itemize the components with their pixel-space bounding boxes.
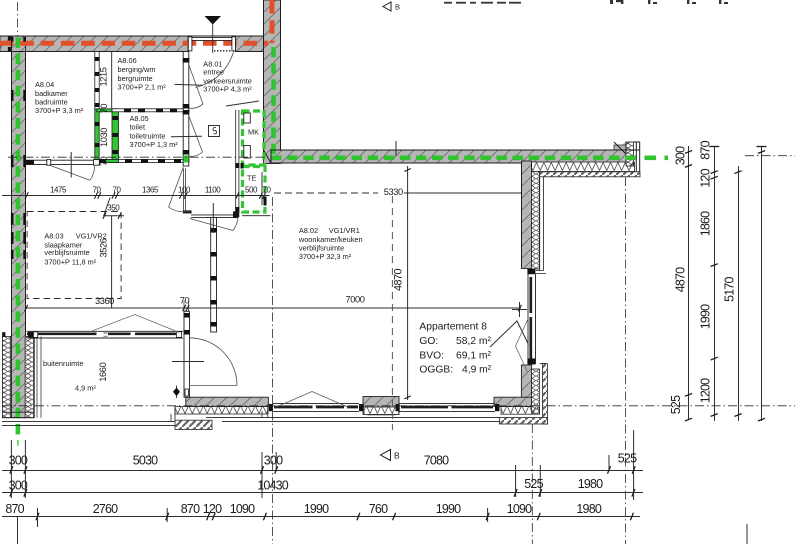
svg-text:toiletruimte: toiletruimte <box>130 131 166 140</box>
svg-text:1990: 1990 <box>436 502 461 516</box>
svg-text:69,1 m²: 69,1 m² <box>456 350 491 361</box>
svg-text:3700+P 2,1 m²: 3700+P 2,1 m² <box>118 83 167 92</box>
svg-text:870: 870 <box>181 502 200 516</box>
svg-text:3360: 3360 <box>95 296 114 306</box>
svg-text:525: 525 <box>618 452 637 466</box>
svg-text:120: 120 <box>699 168 713 187</box>
svg-text:1860: 1860 <box>699 211 713 236</box>
svg-text:1980: 1980 <box>578 477 603 491</box>
svg-text:A8.03: A8.03 <box>44 231 63 240</box>
svg-text:870: 870 <box>699 140 713 159</box>
svg-text:5330: 5330 <box>384 187 403 197</box>
svg-text:2760: 2760 <box>93 502 118 516</box>
svg-text:3700+P 4,3 m²: 3700+P 4,3 m² <box>203 85 252 94</box>
svg-text:BVO:: BVO: <box>419 350 444 361</box>
svg-text:1475: 1475 <box>50 185 67 194</box>
svg-text:525: 525 <box>524 477 543 491</box>
svg-text:A8.05: A8.05 <box>130 114 149 123</box>
svg-text:4,9 m²: 4,9 m² <box>462 364 492 375</box>
svg-text:70: 70 <box>263 185 272 194</box>
svg-text:100: 100 <box>178 185 191 194</box>
svg-text:1200: 1200 <box>699 378 713 403</box>
svg-text:4870: 4870 <box>393 269 405 292</box>
svg-text:300: 300 <box>674 146 688 165</box>
svg-text:1660: 1660 <box>98 362 108 381</box>
svg-text:Appartement 8: Appartement 8 <box>419 322 487 333</box>
svg-text:1090: 1090 <box>230 502 255 516</box>
svg-text:70: 70 <box>180 296 190 306</box>
svg-text:A8.04: A8.04 <box>35 80 54 89</box>
svg-text:4870: 4870 <box>674 267 688 292</box>
svg-text:5030: 5030 <box>133 454 158 468</box>
svg-text:OGGB:: OGGB: <box>419 364 453 375</box>
svg-text:VG1/VR1: VG1/VR1 <box>329 226 360 235</box>
svg-text:120: 120 <box>203 502 222 516</box>
svg-text:300: 300 <box>264 454 283 468</box>
svg-text:525: 525 <box>669 395 683 414</box>
svg-text:B: B <box>395 3 400 12</box>
svg-text:entree: entree <box>203 68 224 77</box>
svg-text:1980: 1980 <box>576 502 601 516</box>
svg-text:3700+P 32,3 m²: 3700+P 32,3 m² <box>299 252 352 261</box>
svg-text:berging/wm: berging/wm <box>118 65 156 74</box>
svg-text:badruimte: badruimte <box>35 97 68 106</box>
svg-text:toilet: toilet <box>130 123 146 132</box>
svg-text:300: 300 <box>9 479 28 493</box>
svg-text:350: 350 <box>107 204 120 213</box>
svg-text:870: 870 <box>5 502 24 516</box>
svg-text:1215: 1215 <box>99 67 109 86</box>
svg-text:A8.02: A8.02 <box>299 226 318 235</box>
svg-text:1100: 1100 <box>205 185 221 194</box>
svg-text:70: 70 <box>99 104 109 114</box>
svg-text:verblijfsruimte: verblijfsruimte <box>44 248 89 257</box>
svg-text:3700+P 11,8 m²: 3700+P 11,8 m² <box>44 257 96 266</box>
svg-text:10430: 10430 <box>257 479 289 493</box>
svg-text:MK: MK <box>248 128 259 137</box>
svg-text:58,2 m²: 58,2 m² <box>456 336 491 347</box>
svg-text:woonkamer/keuken: woonkamer/keuken <box>298 235 363 244</box>
svg-text:1990: 1990 <box>304 502 329 516</box>
svg-text:1030: 1030 <box>99 128 109 147</box>
svg-text:70: 70 <box>99 156 109 166</box>
svg-text:TE: TE <box>247 174 256 183</box>
svg-text:7080: 7080 <box>424 454 449 468</box>
svg-text:3526: 3526 <box>99 238 109 257</box>
svg-text:3700+P 1,3 m²: 3700+P 1,3 m² <box>130 140 179 149</box>
svg-text:1990: 1990 <box>699 304 713 329</box>
svg-text:70: 70 <box>93 185 102 194</box>
svg-text:3700+P 3,3 m²: 3700+P 3,3 m² <box>35 106 84 115</box>
svg-text:GO:: GO: <box>419 336 438 347</box>
svg-text:300: 300 <box>9 454 28 468</box>
svg-text:70: 70 <box>113 185 122 194</box>
svg-text:7000: 7000 <box>345 295 364 305</box>
svg-text:1365: 1365 <box>142 185 159 194</box>
svg-text:500: 500 <box>245 185 258 194</box>
svg-text:buitenruimte: buitenruimte <box>43 359 83 368</box>
svg-text:5170: 5170 <box>723 276 737 301</box>
svg-text:A8.06: A8.06 <box>118 56 137 65</box>
svg-text:B: B <box>394 451 400 461</box>
svg-text:4,9 m²: 4,9 m² <box>75 384 96 393</box>
svg-text:1090: 1090 <box>507 502 532 516</box>
svg-text:760: 760 <box>369 502 388 516</box>
